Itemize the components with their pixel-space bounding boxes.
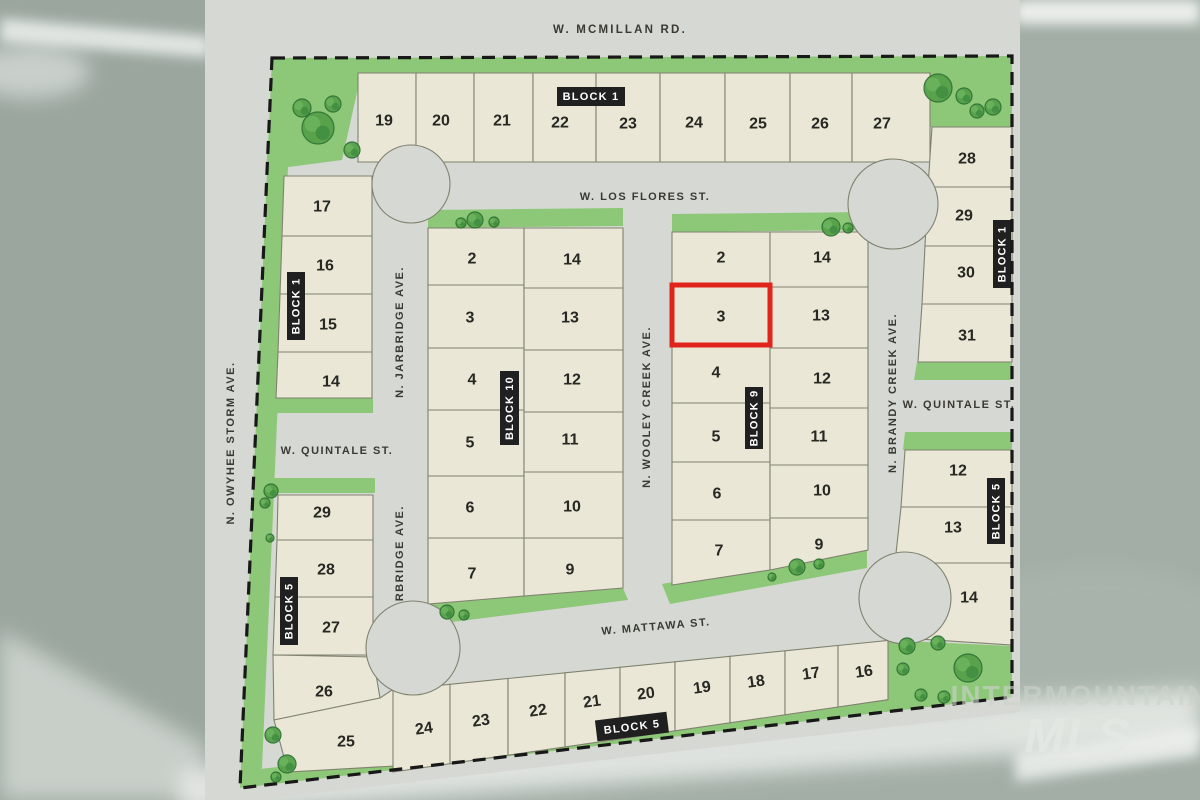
- block-label-text: BLOCK 1: [997, 226, 1009, 283]
- lot-number: 18: [746, 672, 766, 691]
- block-label-block1-west: BLOCK 1: [287, 272, 305, 340]
- lot-number: 12: [949, 463, 967, 480]
- street-label-los-flores: W. LOS FLORES ST.: [580, 191, 711, 203]
- lot-number: 21: [582, 692, 602, 711]
- lot-number: 10: [563, 499, 581, 516]
- watermark-line1: INTERMOUNTAIN: [951, 680, 1200, 711]
- street-label-quintale-west: W. QUINTALE ST.: [281, 445, 394, 457]
- block-label-text: BLOCK 9: [749, 390, 761, 447]
- lot-number: 16: [854, 662, 874, 681]
- lot-number: 26: [315, 684, 333, 701]
- lot-number: 14: [322, 374, 340, 391]
- lot-number: 12: [813, 371, 831, 388]
- tree-icon: [264, 484, 278, 498]
- tree-icon: [456, 218, 466, 228]
- tree-icon: [266, 534, 274, 542]
- lot-number: 3: [466, 310, 475, 327]
- block-label-block9: BLOCK 9: [745, 387, 763, 449]
- lot-number: 14: [960, 590, 978, 607]
- tree-icon: [325, 96, 341, 112]
- lot-number: 7: [468, 566, 477, 583]
- lot-number: 7: [715, 543, 724, 560]
- lot: [428, 476, 524, 538]
- lot-number: 11: [562, 432, 579, 449]
- lot-number: 16: [316, 258, 334, 275]
- block-label-text: BLOCK 1: [291, 278, 303, 335]
- tree-icon: [278, 755, 296, 773]
- green-strip: [264, 478, 375, 493]
- lot-number: 30: [957, 265, 975, 282]
- lot-number: 17: [313, 199, 331, 216]
- tree-icon: [822, 218, 840, 236]
- street-knuckle: [859, 552, 951, 644]
- tree-icon: [440, 605, 454, 619]
- street-knuckle: [848, 159, 938, 249]
- block-label-block5-east: BLOCK 5: [987, 478, 1005, 544]
- lot-number: 2: [717, 250, 726, 267]
- lot-number: 24: [414, 719, 434, 738]
- lot-number: 13: [944, 520, 962, 537]
- lot-number: 27: [322, 620, 340, 637]
- tree-icon: [344, 142, 360, 158]
- tree-icon: [467, 212, 483, 228]
- tree-icon: [768, 573, 776, 581]
- tree-icon: [302, 112, 334, 144]
- lot-number: 14: [563, 252, 581, 269]
- lot-number: 26: [811, 116, 829, 133]
- street-label-quintale-east: W. QUINTALE ST.: [903, 399, 1016, 411]
- tree-icon: [899, 638, 915, 654]
- tree-icon: [265, 727, 281, 743]
- lot-number: 31: [958, 328, 976, 345]
- tree-icon: [814, 559, 824, 569]
- lot-number: 20: [636, 684, 656, 703]
- lot-number: 2: [468, 251, 477, 268]
- block-label-text: BLOCK 10: [504, 376, 516, 440]
- block-label-text: BLOCK 5: [991, 483, 1003, 540]
- street-label-mcmillan: W. MCMILLAN RD.: [553, 24, 687, 36]
- street-label-owyhee-storm: N. OWYHEE STORM AVE.: [225, 361, 237, 524]
- green-strip: [262, 398, 373, 413]
- lot-number: 9: [566, 562, 575, 579]
- lot-number: 3: [717, 309, 726, 326]
- green-strip: [903, 432, 1012, 450]
- lot-number: 4: [468, 372, 477, 389]
- lot-number: 22: [551, 115, 569, 132]
- green-strip: [914, 362, 1012, 380]
- lot-number: 19: [692, 678, 712, 697]
- tree-icon: [489, 217, 499, 227]
- lot-number: 23: [619, 116, 637, 133]
- lot-number: 27: [873, 116, 891, 133]
- tree-icon: [271, 772, 281, 782]
- lot-number: 11: [811, 429, 828, 446]
- lot-number: 25: [337, 734, 355, 751]
- lot-number: 22: [528, 701, 548, 720]
- watermark-line2: MLS: [1024, 710, 1131, 763]
- block-label-block1-north: BLOCK 1: [557, 87, 625, 106]
- lot-number: 5: [712, 429, 721, 446]
- tree-icon: [924, 74, 952, 102]
- tree-icon: [954, 654, 982, 682]
- tree-icon: [459, 610, 469, 620]
- tree-icon: [931, 636, 945, 650]
- lot-number: 6: [466, 500, 475, 517]
- tree-icon: [938, 691, 950, 703]
- lot-number: 12: [563, 372, 581, 389]
- lot-number: 28: [317, 562, 335, 579]
- tree-icon: [897, 663, 909, 675]
- tree-icon: [915, 689, 927, 701]
- lot-number: 15: [319, 317, 337, 334]
- lot-number: 29: [313, 505, 331, 522]
- lot-number: 5: [466, 435, 475, 452]
- lot-number: 13: [561, 310, 579, 327]
- lot-number: 28: [958, 151, 976, 168]
- tree-icon: [985, 99, 1001, 115]
- lot-number: 10: [813, 483, 831, 500]
- lot-number: 25: [749, 116, 767, 133]
- street-label-jarbridge-north: N. JARBRIDGE AVE.: [394, 266, 406, 398]
- lot-number: 9: [815, 537, 824, 554]
- tree-icon: [293, 99, 311, 117]
- tree-icon: [970, 104, 984, 118]
- tree-icon: [843, 223, 853, 233]
- lot-number: 29: [955, 208, 973, 225]
- lot-number: 21: [493, 113, 511, 130]
- lot-number: 14: [813, 250, 831, 267]
- block-label-text: BLOCK 5: [284, 583, 296, 640]
- lot-number: 23: [471, 711, 491, 730]
- lot-number: 6: [713, 486, 722, 503]
- street-label-brandy-creek: N. BRANDY CREEK AVE.: [887, 313, 899, 473]
- street-knuckle: [372, 145, 450, 223]
- lot-number: 19: [375, 113, 393, 130]
- lot-number: 20: [432, 113, 450, 130]
- lot-number: 24: [685, 115, 703, 132]
- lot-number: 17: [801, 664, 821, 683]
- tree-icon: [956, 88, 972, 104]
- plat-map: 1920212223242526271716151428293031234567…: [0, 0, 1200, 800]
- block-label-block1-east: BLOCK 1: [993, 220, 1011, 288]
- lot: [428, 285, 524, 348]
- lot: [852, 73, 930, 162]
- lot-number: 13: [812, 308, 830, 325]
- street-label-wooley-creek: N. WOOLEY CREEK AVE.: [641, 326, 653, 488]
- block-label-text: BLOCK 1: [563, 91, 620, 103]
- photo-road-band: [1015, 0, 1200, 24]
- lot-number: 4: [712, 365, 721, 382]
- tree-icon: [260, 498, 270, 508]
- tree-icon: [789, 559, 805, 575]
- block-label-block5-west: BLOCK 5: [280, 577, 298, 645]
- block-label-block10: BLOCK 10: [500, 371, 519, 445]
